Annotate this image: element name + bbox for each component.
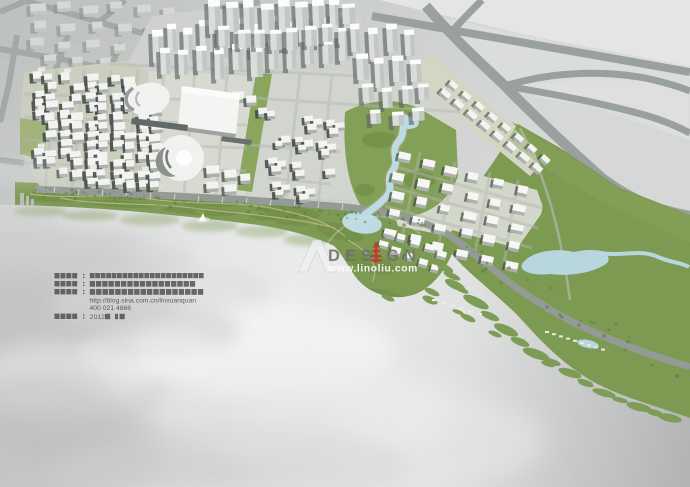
svg-text:400 021 4866: 400 021 4866 [90,305,132,312]
svg-text:www.linoliu.com: www.linoliu.com [327,264,418,275]
svg-text:2012: 2012 [90,314,105,321]
svg-text:GN: GN [386,247,421,265]
svg-text:DES: DES [328,247,377,265]
svg-text:http://blog.sina.com.cn/linxua: http://blog.sina.com.cn/linxuanquan [90,297,197,304]
